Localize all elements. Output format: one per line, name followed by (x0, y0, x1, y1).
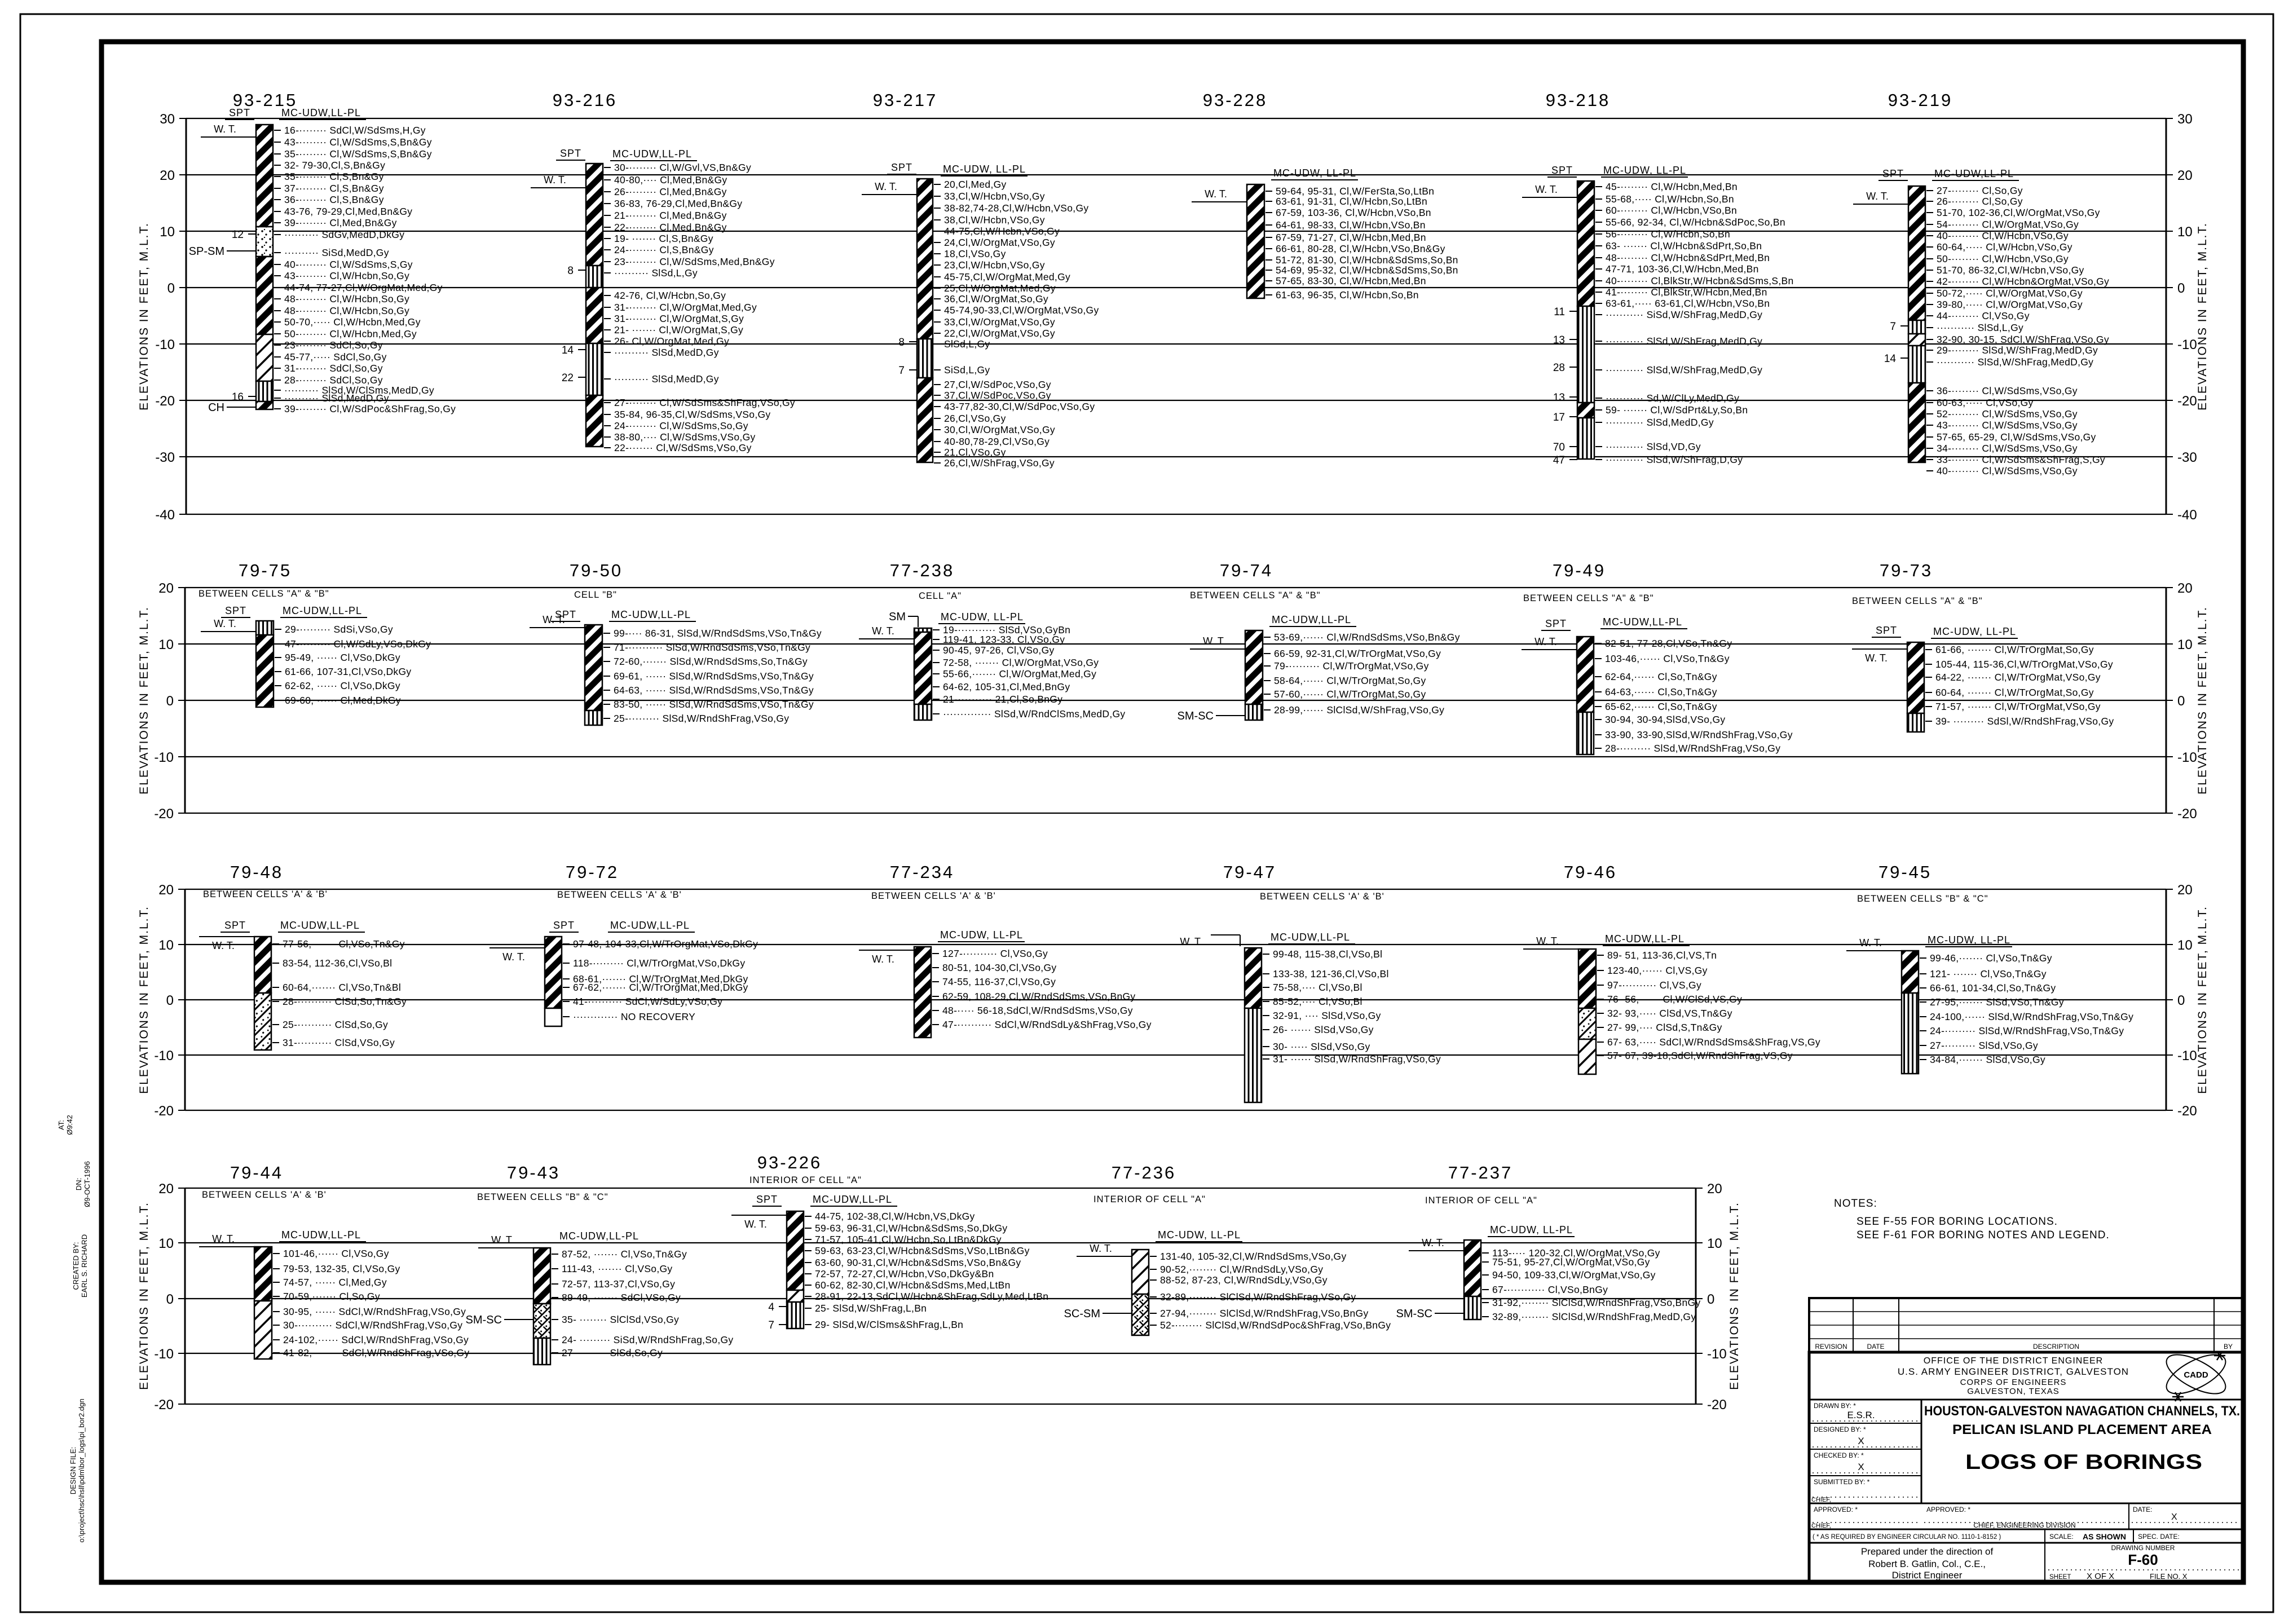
svg-text:0: 0 (2177, 694, 2185, 709)
svg-text:57-65, 83-30, Cl,W/Hcbn,Med: 57-65, 83-30, Cl,W/Hcbn,Med,Bn (1276, 275, 1426, 286)
svg-text:AT:: AT: (57, 1120, 65, 1130)
svg-text:67-··········· Cl,VSo,BnGy: 67-··········· Cl,VSo,BnGy (1492, 1284, 1608, 1295)
svg-text:35-········ Cl,S,Bn&Gy: 35-········ Cl,S,Bn&Gy (284, 171, 384, 182)
svg-text:71-57, ······· Cl,W/TrOrgMat,V: 71-57, ······· Cl,W/TrOrgMat,VSo,Gy (1935, 701, 2101, 712)
svg-text:35-84, 96-35,Cl,W/SdSms,VSo,Gy: 35-84, 96-35,Cl,W/SdSms,VSo,Gy (614, 409, 770, 420)
svg-text:41-········ Cl,BlkStr,W/Hcbn,M: 41-········ Cl,BlkStr,W/Hcbn,Med,Bn (1606, 286, 1767, 298)
svg-text:39-········ Cl,W/SdPoc&ShFrag,: 39-········ Cl,W/SdPoc&ShFrag,So,Gy (284, 403, 456, 414)
svg-text:39-········ Cl,Med,Bn&Gy: 39-········ Cl,Med,Bn&Gy (284, 217, 397, 228)
svg-text:10: 10 (2177, 637, 2193, 652)
svg-text:22-········ Cl,Med,Bn&Gy: 22-········ Cl,Med,Bn&Gy (614, 222, 727, 233)
svg-text:119-41, 123-33, Cl,VSo,Gy: 119-41, 123-33, Cl,VSo,Gy (943, 634, 1065, 645)
svg-text:ELEVATIONS IN FEET, M.L.T.: ELEVATIONS IN FEET, M.L.T. (2196, 222, 2209, 411)
svg-text:43-77,82-30,Cl,W/SdPoc,VSo,Gy: 43-77,82-30,Cl,W/SdPoc,VSo,Gy (944, 401, 1095, 412)
svg-text:64-61, 98-33, Cl,W/Hcbn,VSo: 64-61, 98-33, Cl,W/Hcbn,VSo,Bn (1276, 219, 1426, 231)
svg-text:MC-UDW,LL-PL: MC-UDW,LL-PL (283, 605, 362, 616)
svg-text:64-63, ······ SlSd,W/RndSdSms,: 64-63, ······ SlSd,W/RndSdSms,VSo,Tn&Gy (614, 685, 814, 696)
svg-text:-10: -10 (154, 1347, 174, 1362)
svg-text:97-48, 104-33,Cl,W/TrOrgMat,VS: 97-48, 104-33,Cl,W/TrOrgMat,VSo,DkGy (573, 938, 758, 950)
svg-text:SPT: SPT (224, 920, 246, 931)
svg-text:93-216: 93-216 (553, 90, 618, 110)
svg-text:MC-UDW, LL-PL: MC-UDW, LL-PL (943, 164, 1026, 175)
svg-text:66-61, 101-34,Cl,So,Tn&Gy: 66-61, 101-34,Cl,So,Tn&Gy (1930, 982, 2056, 994)
svg-text:BETWEEN CELLS "B" & "C": BETWEEN CELLS "B" & "C" (1857, 894, 1988, 904)
svg-text:26,Cl,VSo,Gy: 26,Cl,VSo,Gy (944, 413, 1006, 424)
svg-text:40-········ Cl,BlkStr,W/Hcbn&S: 40-········ Cl,BlkStr,W/Hcbn&SdSms,S,Bn (1606, 275, 1794, 286)
svg-text:W. T.: W. T. (502, 951, 525, 963)
svg-text:39- ········· SdSl,W/RndShFrag: 39- ········· SdSl,W/RndShFrag,VSo,Gy (1935, 716, 2114, 727)
svg-text:76- 56,······ Cl,W/ClSd,VS,Gy: 76- 56,······ Cl,W/ClSd,VS,Gy (1607, 994, 1742, 1005)
svg-text:39-80,····· Cl,W/OrgMat,VSo,Gy: 39-80,····· Cl,W/OrgMat,VSo,Gy (1937, 299, 2083, 310)
svg-text:72-57, 113-37,Cl,VSo,Gy: 72-57, 113-37,Cl,VSo,Gy (562, 1278, 675, 1290)
svg-text:26-········ Cl,So,Gy: 26-········ Cl,So,Gy (1937, 196, 2023, 207)
svg-text:20: 20 (158, 882, 174, 898)
svg-text:26-········ Cl,Med,Bn&Gy: 26-········ Cl,Med,Bn&Gy (614, 186, 727, 197)
svg-text:40-80,78-29,Cl,VSo,Gy: 40-80,78-29,Cl,VSo,Gy (944, 436, 1050, 447)
svg-text:DATE:: DATE: (2133, 1506, 2152, 1513)
svg-text:-10: -10 (2177, 337, 2197, 352)
svg-text:············· NO RECOVERY: ············· NO RECOVERY (573, 1011, 695, 1022)
svg-text:··········· SlSd,W/ShFrag,D,Gy: ··········· SlSd,W/ShFrag,D,Gy (1606, 454, 1743, 465)
svg-text:79-46: 79-46 (1564, 862, 1617, 882)
svg-text:-40: -40 (2177, 507, 2197, 523)
svg-text:-20: -20 (155, 394, 175, 409)
svg-text:··········· SlSd,W/ShFrag,MedD: ··········· SlSd,W/ShFrag,MedD,Gy (1606, 336, 1762, 347)
svg-text:SiSd,L,Gy: SiSd,L,Gy (944, 364, 990, 376)
svg-text:MC-UDW,LL-PL: MC-UDW,LL-PL (813, 1194, 892, 1205)
svg-text:95-49, ······ Cl,VSo,DkGy: 95-49, ······ Cl,VSo,DkGy (285, 652, 400, 663)
svg-text:MC-UDW, LL-PL: MC-UDW, LL-PL (941, 611, 1024, 623)
svg-text:45-77,····· SdCl,So,Gy: 45-77,····· SdCl,So,Gy (284, 351, 387, 363)
svg-text:26- ······ SlSd,VSo,Gy: 26- ······ SlSd,VSo,Gy (1273, 1024, 1374, 1035)
svg-text:93-226: 93-226 (757, 1153, 822, 1172)
svg-text:29- SlSd,W/ClSms&S: 29- SlSd,W/ClSms&ShFrag,L,Bn (815, 1319, 963, 1330)
svg-text:47-71, 103-36,Cl,W/Hcbn,Med,Bn: 47-71, 103-36,Cl,W/Hcbn,Med,Bn (1606, 263, 1759, 275)
svg-text:51-72, 81-30, Cl,W/Hcbn&SdS: 51-72, 81-30, Cl,W/Hcbn&SdSms,So,Bn (1276, 254, 1458, 266)
svg-text:123-40,······ Cl,VS,Gy: 123-40,······ Cl,VS,Gy (1607, 965, 1708, 976)
svg-text:35- ········ SlClSd,VSo,Gy: 35- ········ SlClSd,VSo,Gy (562, 1314, 679, 1325)
svg-text:·········· SdGv,MedD,DkGy: ·········· SdGv,MedD,DkGy (284, 229, 404, 240)
svg-text:27- 99,···· ClSd,S,Tn&Gy: 27- 99,···· ClSd,S,Tn&Gy (1607, 1022, 1722, 1033)
svg-text:30-········ Cl,W/Gvl,VS,Bn&Gy: 30-········ Cl,W/Gvl,VS,Bn&Gy (614, 162, 751, 173)
svg-text:64-63,······ Cl,So,Tn&Gy: 64-63,······ Cl,So,Tn&Gy (1605, 686, 1717, 698)
svg-text:43-········ Cl,W/SdSms,VSo,Gy: 43-········ Cl,W/SdSms,VSo,Gy (1937, 420, 2078, 431)
svg-text:CORPS OF ENGINEERS: CORPS OF ENGINEERS (1960, 1378, 2067, 1387)
svg-text:77-237: 77-237 (1448, 1163, 1513, 1182)
svg-text:-20: -20 (154, 806, 174, 822)
svg-text:-10: -10 (1707, 1347, 1727, 1362)
svg-text:48-········ Cl,W/Hcbn,So,Gy: 48-········ Cl,W/Hcbn,So,Gy (284, 305, 409, 316)
svg-text:45-········ Cl,W/Hcbn,Med,Bn: 45-········ Cl,W/Hcbn,Med,Bn (1606, 181, 1738, 192)
svg-text:BETWEEN CELLS "A" & "B": BETWEEN CELLS "A" & "B" (199, 589, 329, 599)
svg-text:MC-UDW,LL-PL: MC-UDW,LL-PL (1271, 932, 1350, 943)
svg-text:W. T.: W. T. (1422, 1237, 1444, 1248)
svg-text:··········· SlSd,W/ShFrag,MedD: ··········· SlSd,W/ShFrag,MedD,Gy (1937, 356, 2093, 368)
svg-text:30-·········· SdCl,W/RndShFrag: 30-·········· SdCl,W/RndShFrag,VSo,Gy (283, 1319, 462, 1331)
svg-text:W. T.: W. T. (872, 625, 894, 637)
svg-text:45-75,Cl,W/OrgMat,Med,Gy: 45-75,Cl,W/OrgMat,Med,Gy (944, 271, 1070, 283)
svg-text:40-········ Cl,W/SdSms,S,Gy: 40-········ Cl,W/SdSms,S,Gy (284, 259, 413, 270)
svg-text:42-········ Cl,W/Hcbn&OrgMat,V: 42-········ Cl,W/Hcbn&OrgMat,VSo,Gy (1937, 276, 2109, 287)
svg-text:74-57, ······ Cl,Med,Gy: 74-57, ······ Cl,Med,Gy (283, 1277, 387, 1288)
svg-text:28-········· SlSd,W/RndShFrag,: 28-········· SlSd,W/RndShFrag,VSo,Gy (1605, 743, 1780, 754)
svg-text:F-60: F-60 (2128, 1551, 2158, 1568)
svg-text:55-68,····· Cl,W/Hcbn,So,Bn: 55-68,····· Cl,W/Hcbn,So,Bn (1606, 193, 1734, 205)
svg-text:27- ········ SlSd,So,Gy: 27- ········ SlSd,So,Gy (562, 1347, 663, 1358)
svg-text:79-75: 79-75 (239, 561, 292, 580)
svg-text:DESCRIPTION: DESCRIPTION (2033, 1343, 2079, 1351)
svg-text:48-····· 56-18,SdCl,W/RndSdSms: 48-····· 56-18,SdCl,W/RndSdSms,VSo,Gy (942, 1005, 1133, 1016)
svg-text:·············· SlSd,W/RndClSms: ·············· SlSd,W/RndClSms,MedD,Gy (943, 708, 1125, 720)
svg-text:SPT: SPT (229, 107, 250, 118)
svg-text:27,Cl,W/SdPoc,VSo,Gy: 27,Cl,W/SdPoc,VSo,Gy (944, 379, 1051, 390)
svg-text:14: 14 (562, 345, 574, 356)
svg-text:79-72: 79-72 (566, 862, 619, 882)
svg-text:CADD: CADD (2184, 1370, 2208, 1380)
svg-text:56-········ Cl,W/Hcbn,So,Bn: 56-········ Cl,W/Hcbn,So,Bn (1606, 228, 1730, 240)
svg-text:MC-UDW, LL-PL: MC-UDW, LL-PL (1933, 626, 2016, 637)
svg-text:W. T.: W. T. (212, 1233, 235, 1245)
svg-text:77-234: 77-234 (890, 862, 955, 882)
svg-text:W. T.: W. T. (1859, 937, 1882, 948)
svg-text:70: 70 (1553, 442, 1565, 453)
svg-text:·········· SlSd,L,Gy: ·········· SlSd,L,Gy (614, 267, 698, 279)
svg-text:22: 22 (562, 372, 574, 384)
svg-text:SM-SC: SM-SC (1396, 1308, 1432, 1320)
svg-text:13: 13 (1553, 334, 1565, 346)
svg-text:INTERIOR OF CELL "A": INTERIOR OF CELL "A" (749, 1175, 862, 1185)
svg-text:17: 17 (1553, 412, 1565, 423)
svg-text:64-22, ······· Cl,W/TrOrgMat,V: 64-22, ······· Cl,W/TrOrgMat,VSo,Gy (1935, 672, 2101, 683)
svg-text:27-········· SlSd,VSo,Gy: 27-········· SlSd,VSo,Gy (1930, 1040, 2038, 1051)
svg-text:60-63,····· Cl,VSo,Gy: 60-63,····· Cl,VSo,Gy (1937, 397, 2034, 408)
svg-text:Robert B. Gatlin, Col., C.E.,: Robert B. Gatlin, Col., C.E., (1868, 1559, 1986, 1569)
svg-text:51-70, 86-32,Cl,W/Hcbn,VSo,Gy: 51-70, 86-32,Cl,W/Hcbn,VSo,Gy (1937, 264, 2084, 276)
svg-text:79-45: 79-45 (1879, 862, 1932, 882)
svg-text:37-········ Cl,S,Bn&Gy: 37-········ Cl,S,Bn&Gy (284, 183, 384, 194)
svg-text:20: 20 (1707, 1181, 1722, 1197)
svg-text:-20: -20 (2177, 394, 2197, 409)
svg-text:29-········· SdSi,VSo,Gy: 29-········· SdSi,VSo,Gy (285, 624, 393, 635)
svg-text:79-48: 79-48 (230, 862, 283, 882)
svg-text:65-62,······ Cl,So,Tn&Gy: 65-62,······ Cl,So,Tn&Gy (1605, 701, 1717, 712)
svg-text:BETWEEN CELLS 'A' & 'B': BETWEEN CELLS 'A' & 'B' (871, 891, 996, 901)
svg-text:8: 8 (898, 337, 905, 348)
svg-text:32-90, 30-15, SdCl,W/ShFrag,VS: 32-90, 30-15, SdCl,W/ShFrag,VSo,Gy (1937, 334, 2109, 345)
svg-text:MC-UDW,LL-PL: MC-UDW,LL-PL (559, 1230, 639, 1242)
svg-text:63-61,····· 63-61,Cl,W/Hcbn,VS: 63-61,····· 63-61,Cl,W/Hcbn,VSo,Bn (1606, 298, 1770, 309)
svg-text:79-43: 79-43 (507, 1163, 560, 1182)
svg-text:36-········ Cl,W/SdSms,VSo,Gy: 36-········ Cl,W/SdSms,VSo,Gy (1937, 385, 2078, 396)
svg-text:W. T.: W. T. (1865, 652, 1888, 664)
svg-text:47-·········· SdCl,W/RndSdLy&: 47-·········· SdCl,W/RndSdLy&ShFrag,VSo,… (942, 1019, 1152, 1030)
svg-text:60-64,······· Cl,VSo,Tn&Bl: 60-64,······· Cl,VSo,Tn&Bl (283, 982, 401, 993)
svg-text:MC-UDW, LL-PL: MC-UDW, LL-PL (1273, 167, 1356, 179)
svg-text:30-94, 30-94,SlSd,VSo,Gy: 30-94, 30-94,SlSd,VSo,Gy (1605, 714, 1725, 725)
svg-text:( * AS REQUIRED BY ENGINEER C: ( * AS REQUIRED BY ENGINEER CIRCULAR NO.… (1813, 1534, 2001, 1541)
svg-text:4: 4 (768, 1301, 774, 1313)
svg-text:W. T.: W. T. (544, 174, 566, 186)
svg-text:31-92,········ SlClSd,W/RndShF: 31-92,········ SlClSd,W/RndShFrag,VSo,Bn… (1492, 1297, 1701, 1308)
svg-text:-30: -30 (155, 450, 175, 465)
svg-text:44-75,Cl,W/Hcbn,VSo,Gy: 44-75,Cl,W/Hcbn,VSo,Gy (944, 226, 1060, 237)
svg-text:34-········ Cl,W/SdSms,VSo,Gy: 34-········ Cl,W/SdSms,VSo,Gy (1937, 443, 2078, 454)
svg-text:97-·········· Cl,VS,Gy: 97-·········· Cl,VS,Gy (1607, 979, 1701, 991)
svg-text:31-········ Cl,W/OrgMat,S,Gy: 31-········ Cl,W/OrgMat,S,Gy (614, 313, 744, 324)
svg-text:28-99,······ SlClSd,W/ShFrag,V: 28-99,······ SlClSd,W/ShFrag,VSo,Gy (1274, 704, 1444, 716)
svg-text:APPROVED: *: APPROVED: * (1814, 1506, 1858, 1513)
svg-text:26,Cl,W/ShFrag,VSo,Gy: 26,Cl,W/ShFrag,VSo,Gy (944, 457, 1055, 469)
svg-text:19- ······· Cl,S,Bn&Gy: 19- ······· Cl,S,Bn&Gy (614, 233, 713, 244)
svg-text:75-51, 95-27,Cl,W/OrgMat,VSo: 75-51, 95-27,Cl,W/OrgMat,VSo,Gy (1492, 1256, 1650, 1268)
svg-text:60-64, ······· Cl,W/TrOrgMat,S: 60-64, ······· Cl,W/TrOrgMat,So,Gy (1935, 687, 2094, 698)
svg-text:SM-SC: SM-SC (1178, 710, 1214, 722)
svg-text:30,Cl,W/OrgMat,VSo,Gy: 30,Cl,W/OrgMat,VSo,Gy (944, 424, 1055, 435)
svg-text:W. T.: W. T. (491, 1234, 514, 1246)
svg-text:22,Cl,W/OrgMat,VSo,Gy: 22,Cl,W/OrgMat,VSo,Gy (944, 328, 1055, 339)
svg-text:38-80,···· Cl,W/SdSms,VSo,Gy: 38-80,···· Cl,W/SdSms,VSo,Gy (614, 431, 756, 443)
svg-text:32-89,········ SlClSd,W/RndShF: 32-89,········ SlClSd,W/RndShFrag,VSo,Gy (1160, 1291, 1356, 1303)
svg-text:79-49: 79-49 (1553, 561, 1606, 580)
svg-text:SPT: SPT (1545, 618, 1567, 629)
svg-text:CH: CH (208, 401, 224, 414)
svg-text:7: 7 (1890, 321, 1896, 333)
svg-text:MC-UDW,LL-PL: MC-UDW,LL-PL (1603, 616, 1682, 628)
svg-text:25-·········· ClSd,So,Gy: 25-·········· ClSd,So,Gy (283, 1019, 388, 1030)
svg-text:SPT: SPT (1882, 168, 1904, 179)
svg-text:40-80,···· Cl,Med,Bn&Gy: 40-80,···· Cl,Med,Bn&Gy (614, 174, 727, 186)
svg-text:21- ······· Cl,W/OrgMat,S,Gy: 21- ······· Cl,W/OrgMat,S,Gy (614, 324, 743, 336)
svg-text:·········· SlSd,MedD,Gy: ·········· SlSd,MedD,Gy (284, 392, 389, 404)
svg-text:ELEVATIONS IN FEET, M.L.T.: ELEVATIONS IN FEET, M.L.T. (138, 1202, 151, 1390)
svg-text:0: 0 (1707, 1292, 1714, 1307)
svg-text:W. T.: W. T. (212, 940, 235, 951)
svg-text:32- 93,····· ClSd,VS,Tn&Gy: 32- 93,····· ClSd,VS,Tn&Gy (1607, 1008, 1732, 1019)
svg-text:SlSd,L,Gy: SlSd,L,Gy (944, 338, 990, 350)
svg-text:8: 8 (567, 265, 574, 277)
svg-text:48-········ Cl,W/Hcbn,So,Gy: 48-········ Cl,W/Hcbn,So,Gy (284, 293, 409, 304)
svg-text:43-········ Cl,W/Hcbn,So,Gy: 43-········ Cl,W/Hcbn,So,Gy (284, 270, 409, 281)
svg-text:0: 0 (166, 694, 174, 709)
svg-text:W. T.: W. T. (1534, 636, 1557, 647)
svg-text:50-········ Cl,W/Hcbn,VSo,Gy: 50-········ Cl,W/Hcbn,VSo,Gy (1937, 253, 2069, 264)
svg-text:67-59, 103-36, Cl,W/Hcbn,VSo,: 67-59, 103-36, Cl,W/Hcbn,VSo,Bn (1276, 207, 1431, 218)
svg-text:72-58, ······· Cl,W/OrgMat,VSo: 72-58, ······· Cl,W/OrgMat,VSo,Gy (943, 657, 1099, 668)
svg-text:57-65, 65-29, Cl,W/SdSms,VSo,G: 57-65, 65-29, Cl,W/SdSms,VSo,Gy (1937, 431, 2096, 443)
svg-text:U.S. ARMY ENGINEER DISTRICT, G: U.S. ARMY ENGINEER DISTRICT, GALVESTON (1898, 1366, 2129, 1377)
svg-text:69-61, ······ SlSd,W/RndSdSms,: 69-61, ······ SlSd,W/RndSdSms,VSo,Tn&Gy (614, 670, 814, 682)
svg-text:90-45, 97-26, Cl,VSo,Gy: 90-45, 97-26, Cl,VSo,Gy (943, 645, 1055, 656)
svg-text:72-60,······· SlSd,W/RndSdSms,: 72-60,······· SlSd,W/RndSdSms,So,Tn&Gy (614, 656, 808, 667)
svg-text:90-52,········ Cl,W/RndSdLy,VS: 90-52,········ Cl,W/RndSdLy,VSo,Gy (1160, 1264, 1323, 1275)
svg-text:14: 14 (1884, 353, 1897, 365)
svg-text:DRAWING NUMBER: DRAWING NUMBER (2111, 1544, 2175, 1552)
svg-text:··········· SlSd,W/ShFrag,MedD: ··········· SlSd,W/ShFrag,MedD,Gy (1606, 364, 1762, 376)
svg-text:60-62, 82-30,Cl,W/Hcbn&SdSms,: 60-62, 82-30,Cl,W/Hcbn&SdSms,Med,LtBn (815, 1279, 1011, 1291)
svg-text:X: X (1858, 1436, 1864, 1446)
svg-text:31- ······ SlSd,W/RndShFrag,VS: 31- ······ SlSd,W/RndShFrag,VSo,Gy (1273, 1053, 1441, 1065)
svg-text:SP-SM: SP-SM (189, 245, 224, 258)
svg-text:BETWEEN CELLS "B" & "C": BETWEEN CELLS "B" & "C" (477, 1192, 608, 1202)
svg-text:DESIGNED BY: *: DESIGNED BY: * (1814, 1426, 1866, 1433)
svg-text:93-218: 93-218 (1546, 90, 1611, 110)
svg-text:44-········ Cl,VSo,Gy: 44-········ Cl,VSo,Gy (1937, 310, 2030, 321)
svg-text:MC-UDW,LL-PL: MC-UDW,LL-PL (1605, 933, 1685, 945)
svg-text:-40: -40 (155, 507, 175, 523)
svg-text:42-76, Cl,W/Hcbn,So,Gy: 42-76, Cl,W/Hcbn,So,Gy (614, 290, 726, 301)
svg-text:20: 20 (158, 581, 174, 596)
svg-text:ELEVATIONS IN FEET, M.L.T.: ELEVATIONS IN FEET, M.L.T. (1728, 1202, 1741, 1390)
svg-text:40-········ Cl,W/SdSms,VSo,Gy: 40-········ Cl,W/SdSms,VSo,Gy (1937, 465, 2078, 476)
svg-text:W. T.: W. T. (1536, 935, 1559, 947)
svg-text:SPT: SPT (560, 148, 581, 159)
svg-text:52-········ SlClSd,W/RndSdPoc: 52-········ SlClSd,W/RndSdPoc&ShFrag,VSo… (1160, 1319, 1391, 1331)
svg-text:79-44: 79-44 (230, 1163, 283, 1182)
svg-text:55-66, 92-34, Cl,W/Hcbn&SdPoc,: 55-66, 92-34, Cl,W/Hcbn&SdPoc,So,Bn (1606, 217, 1785, 228)
svg-text:38,Cl,W/Hcbn,VSo,Gy: 38,Cl,W/Hcbn,VSo,Gy (944, 214, 1045, 226)
svg-text:-10: -10 (2177, 1048, 2197, 1063)
svg-text:SEE F-61 FOR BORING NOTES AND: SEE F-61 FOR BORING NOTES AND LEGEND. (1857, 1229, 2110, 1241)
svg-text:0: 0 (166, 993, 174, 1008)
svg-text:OFFICE OF THE DISTRICT ENGINEE: OFFICE OF THE DISTRICT ENGINEER (1924, 1356, 2103, 1366)
svg-text:33,Cl,W/Hcbn,VSo,Gy: 33,Cl,W/Hcbn,VSo,Gy (944, 191, 1045, 202)
svg-text:CHIEF, ENGINEERING DIVISION: CHIEF, ENGINEERING DIVISION (1973, 1521, 2075, 1529)
svg-text:10: 10 (158, 1236, 174, 1251)
svg-text:103-46,······ Cl,VSo,Tn&Gy: 103-46,······ Cl,VSo,Tn&Gy (1605, 653, 1730, 664)
svg-text:SHEET: SHEET (2049, 1574, 2071, 1581)
svg-text:79-50: 79-50 (570, 561, 623, 580)
svg-text:DATE: DATE (1867, 1343, 1884, 1351)
svg-text:35-········ Cl,W/SdSms,S,Bn&Gy: 35-········ Cl,W/SdSms,S,Bn&Gy (284, 148, 432, 160)
svg-text:W. T.: W. T. (1090, 1243, 1112, 1254)
svg-text:Prepared under the direction o: Prepared under the direction of (1861, 1546, 1994, 1557)
svg-text:67- 63,····· SdCl,W/RndSdSms&: 67- 63,····· SdCl,W/RndSdSms&ShFrag,VS,G… (1607, 1036, 1820, 1048)
svg-text:DESIGN FILE:: DESIGN FILE: (69, 1447, 77, 1495)
svg-text:BETWEEN CELLS 'A' & 'B': BETWEEN CELLS 'A' & 'B' (557, 890, 682, 900)
svg-text:10: 10 (160, 224, 175, 240)
svg-text:40-········ Cl,W/Hcbn,VSo,Gy: 40-········ Cl,W/Hcbn,VSo,Gy (1937, 230, 2069, 241)
svg-text:62-59, 108-29,Cl,W/RndSdSms,: 62-59, 108-29,Cl,W/RndSdSms,VSo,BnGy (942, 991, 1135, 1002)
svg-text:·········· SlSd,MedD,Gy: ·········· SlSd,MedD,Gy (614, 347, 719, 358)
svg-text:41-82, ······· SdCl,W/RndShFra: 41-82, ······· SdCl,W/RndShFrag,VSo,Gy (283, 1347, 469, 1358)
svg-text:CELL "A": CELL "A" (919, 591, 962, 601)
svg-text:7: 7 (768, 1319, 774, 1331)
svg-text:20: 20 (2177, 882, 2193, 898)
svg-text:82-51, 77-28,Cl,VSo,Tn&Gy: 82-51, 77-28,Cl,VSo,Tn&Gy (1605, 638, 1732, 649)
svg-text:77-238: 77-238 (890, 561, 955, 580)
svg-text:20,Cl,Med,Gy: 20,Cl,Med,Gy (944, 179, 1007, 190)
svg-text:83-54, 112-36,Cl,VSo,Bl: 83-54, 112-36,Cl,VSo,Bl (283, 957, 392, 969)
svg-text:67-59, 71-27, Cl,W/Hcbn,Med: 67-59, 71-27, Cl,W/Hcbn,Med,Bn (1276, 232, 1426, 243)
svg-text:22-······· Cl,W/SdSms,VSo,Gy: 22-······· Cl,W/SdSms,VSo,Gy (614, 442, 752, 453)
svg-text:127-·········· Cl,VSo,Gy: 127-·········· Cl,VSo,Gy (942, 948, 1048, 959)
svg-text:28-91, 22-13,SdCl,W/Hcbn&ShFr: 28-91, 22-13,SdCl,W/Hcbn&ShFrag,SdLy,Med… (815, 1291, 1048, 1302)
svg-text:79-53, 132-35, Cl,VSo,Gy: 79-53, 132-35, Cl,VSo,Gy (283, 1263, 400, 1274)
svg-text:31-·········· ClSd,VSo,Gy: 31-·········· ClSd,VSo,Gy (283, 1037, 395, 1048)
svg-text:SPT: SPT (553, 920, 575, 931)
svg-text:SPT: SPT (891, 162, 912, 173)
svg-text:32-89,········ SlClSd,W/RndShF: 32-89,········ SlClSd,W/RndShFrag,MedD,G… (1492, 1311, 1696, 1322)
svg-text:121- ······· Cl,VSo,Tn&Gy: 121- ······· Cl,VSo,Tn&Gy (1930, 968, 2047, 979)
svg-text:32- 79-30,Cl,S,Bn&Gy: 32- 79-30,Cl,S,Bn&Gy (284, 160, 385, 171)
svg-text:SCALE:: SCALE: (2049, 1533, 2074, 1541)
svg-text:36,Cl,W/OrgMat,So,Gy: 36,Cl,W/OrgMat,So,Gy (944, 293, 1048, 304)
svg-text:37,Cl,W/SdPoc,VSo,Gy: 37,Cl,W/SdPoc,VSo,Gy (944, 390, 1051, 401)
svg-text:HOUSTON-GALVESTON NAVAGATION C: HOUSTON-GALVESTON NAVAGATION CHANNELS, T… (1924, 1404, 2240, 1419)
svg-text:ELEVATIONS IN FEET, M.L.T.: ELEVATIONS IN FEET, M.L.T. (138, 222, 151, 411)
svg-text:62-62, ······ Cl,VSo,DkGy: 62-62, ······ Cl,VSo,DkGy (285, 680, 400, 691)
svg-text:71-·········· SlSd,W/RndSdSms,: 71-·········· SlSd,W/RndSdSms,VSo,Tn&Gy (614, 642, 810, 653)
svg-text:63- ······· Cl,W/Hcbn&SdPrt,So: 63- ······· Cl,W/Hcbn&SdPrt,So,Bn (1606, 240, 1762, 251)
svg-text:MC-UDW, LL-PL: MC-UDW, LL-PL (1490, 1224, 1573, 1235)
svg-text:38-82,74-28,Cl,W/Hcbn,VSo,Gy: 38-82,74-28,Cl,W/Hcbn,VSo,Gy (944, 202, 1088, 214)
svg-text:47: 47 (1553, 454, 1565, 466)
svg-text:47-········· Cl,W/SdLy,VSo,DkG: 47-········· Cl,W/SdLy,VSo,DkGy (285, 638, 431, 650)
svg-text:MC-UDW,LL-PL: MC-UDW,LL-PL (611, 609, 691, 620)
svg-text:89- 51, 113-36,Cl,VS,Tn: 89- 51, 113-36,Cl,VS,Tn (1607, 950, 1717, 961)
svg-text:-20: -20 (154, 1397, 174, 1413)
svg-text:133-38, 121-36,Cl,VSo,Bl: 133-38, 121-36,Cl,VSo,Bl (1273, 968, 1389, 979)
svg-text:SM-SC: SM-SC (466, 1314, 502, 1326)
svg-text:PELICAN ISLAND PLACEMENT AREA: PELICAN ISLAND PLACEMENT AREA (1952, 1422, 2212, 1437)
svg-text:··········· SlSd,VD,Gy: ··········· SlSd,VD,Gy (1606, 441, 1701, 452)
svg-text:MC-UDW,LL-PL: MC-UDW,LL-PL (610, 920, 690, 931)
svg-text:BETWEEN CELLS "A" & "B": BETWEEN CELLS "A" & "B" (1852, 596, 1983, 606)
svg-text:25- SlSd,W/ShFrag,: 25- SlSd,W/ShFrag,L,Bn (815, 1303, 927, 1314)
svg-text:30: 30 (160, 112, 175, 127)
svg-text:13: 13 (1553, 392, 1565, 404)
svg-text:7: 7 (898, 365, 905, 377)
svg-text:26- Cl,W/OrgMat,Med,: 26- Cl,W/OrgMat,Med,Gy (614, 336, 729, 347)
svg-text:28-·········· ClSd,So,Tn&Gy: 28-·········· ClSd,So,Tn&Gy (283, 996, 407, 1007)
svg-text:MC-UDW, LL-PL: MC-UDW, LL-PL (1928, 934, 2010, 946)
svg-text:43-········ Cl,W/SdSms,S,Bn&Gy: 43-········ Cl,W/SdSms,S,Bn&Gy (284, 136, 432, 148)
svg-text:66-59, 92-31,Cl,W/TrOrgMat,VSo: 66-59, 92-31,Cl,W/TrOrgMat,VSo,Gy (1274, 648, 1441, 659)
svg-text:21-········ Cl,Med,Bn&Gy: 21-········ Cl,Med,Bn&Gy (614, 210, 727, 221)
svg-text:64-62, 105-31,Cl,Med,BnGy: 64-62, 105-31,Cl,Med,BnGy (943, 681, 1070, 692)
svg-text:24- ········· SiSd,W/RndShFra: 24- ········· SiSd,W/RndShFrag,So,Gy (562, 1334, 733, 1345)
svg-text:BETWEEN CELLS 'A' & 'B': BETWEEN CELLS 'A' & 'B' (1260, 892, 1384, 902)
svg-text:W. T.: W. T. (214, 618, 236, 629)
svg-text:33-········ Cl,W/SdSms&ShFrag,: 33-········ Cl,W/SdSms&ShFrag,S,Gy (1937, 454, 2105, 465)
svg-text:-10: -10 (154, 750, 174, 765)
svg-text:28-········ SdCl,So,Gy: 28-········ SdCl,So,Gy (284, 374, 383, 386)
svg-text:70-59,······· Cl,So,Gy: 70-59,······· Cl,So,Gy (283, 1291, 380, 1302)
svg-text:31-········ SdCl,So,Gy: 31-········ SdCl,So,Gy (284, 363, 383, 374)
svg-text:MC-UDW,LL-PL: MC-UDW,LL-PL (1272, 614, 1351, 625)
svg-text:SPT: SPT (1551, 165, 1573, 176)
svg-text:CHIEF,: CHIEF, (1811, 1522, 1831, 1529)
svg-text:61-66, ······· Cl,W/TrOrgMat,S: 61-66, ······· Cl,W/TrOrgMat,So,Gy (1935, 644, 2094, 655)
svg-text:ELEVATIONS IN FEET, M.L.T.: ELEVATIONS IN FEET, M.L.T. (138, 906, 151, 1094)
svg-text:MC-UDW,LL-PL: MC-UDW,LL-PL (612, 148, 692, 160)
svg-text:W. T.: W. T. (875, 181, 897, 192)
svg-text:0: 0 (167, 281, 175, 296)
svg-text:16: 16 (232, 391, 244, 403)
svg-text:W. T.: W. T. (1180, 936, 1202, 947)
svg-text:33,Cl,W/OrgMat,VSo,Gy: 33,Cl,W/OrgMat,VSo,Gy (944, 316, 1055, 328)
svg-text:MC-UDW,LL-PL: MC-UDW,LL-PL (281, 107, 361, 118)
svg-text:36-83, 76-29,Cl,Med,Bn&Gy: 36-83, 76-29,Cl,Med,Bn&Gy (614, 198, 742, 209)
svg-text:CHIEF,: CHIEF, (1811, 1497, 1831, 1503)
svg-text:W. T.: W. T. (543, 614, 565, 625)
svg-text:District Engineer: District Engineer (1892, 1570, 1963, 1581)
svg-text:79-73: 79-73 (1880, 561, 1933, 580)
svg-text:-10: -10 (154, 1048, 174, 1063)
svg-text:·········· SiSd,MedD,Gy: ·········· SiSd,MedD,Gy (284, 247, 389, 258)
svg-text:50-70,····· Cl,W/Hcbn,Med,Gy: 50-70,····· Cl,W/Hcbn,Med,Gy (284, 316, 421, 328)
svg-text:-20: -20 (1707, 1397, 1727, 1413)
